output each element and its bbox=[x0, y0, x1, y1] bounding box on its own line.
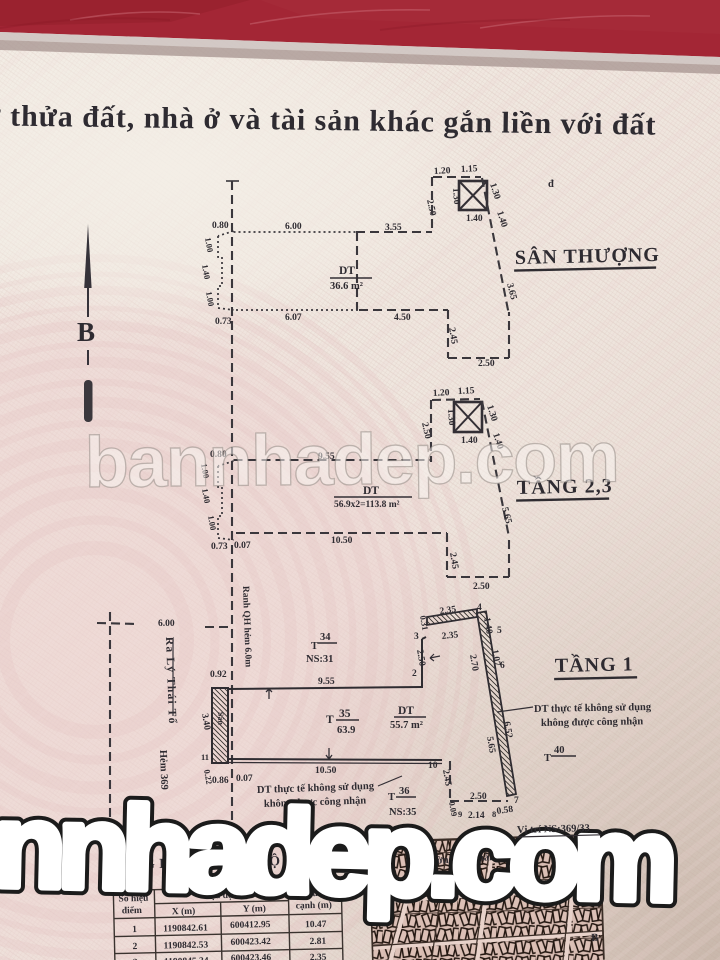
svg-text:2.50: 2.50 bbox=[473, 582, 490, 592]
svg-text:55.7 m²: 55.7 m² bbox=[390, 720, 423, 731]
svg-text:DT thực tế không sử dụng: DT thực tế không sử dụng bbox=[534, 702, 652, 715]
svg-text:63.9: 63.9 bbox=[337, 725, 355, 736]
svg-text:T: T bbox=[311, 641, 318, 652]
svg-text:34: 34 bbox=[320, 632, 331, 643]
svg-text:T: T bbox=[326, 714, 334, 726]
svg-text:NS:31: NS:31 bbox=[306, 654, 333, 665]
svg-text:5: 5 bbox=[497, 626, 502, 636]
svg-text:1.20: 1.20 bbox=[434, 166, 451, 177]
svg-text:1.40: 1.40 bbox=[466, 214, 483, 224]
svg-text:1190845.34: 1190845.34 bbox=[164, 956, 209, 960]
svg-text:0.73: 0.73 bbox=[211, 542, 228, 552]
svg-text:3: 3 bbox=[414, 632, 419, 642]
svg-text:10: 10 bbox=[428, 761, 438, 771]
svg-text:2: 2 bbox=[412, 669, 417, 679]
svg-text:T: T bbox=[544, 753, 551, 764]
svg-text:40: 40 bbox=[554, 745, 565, 756]
svg-text:600423.46: 600423.46 bbox=[231, 953, 272, 960]
svg-text:10.50: 10.50 bbox=[331, 536, 353, 546]
svg-text:2.81: 2.81 bbox=[309, 937, 326, 947]
svg-text:6.00: 6.00 bbox=[158, 619, 175, 629]
svg-text:1190842.53: 1190842.53 bbox=[163, 940, 208, 951]
svg-text:10.47: 10.47 bbox=[305, 920, 327, 930]
svg-text:3.55: 3.55 bbox=[385, 223, 402, 233]
svg-text:9.55: 9.55 bbox=[318, 677, 335, 687]
svg-text:600412.95: 600412.95 bbox=[230, 920, 271, 931]
svg-text:600423.42: 600423.42 bbox=[230, 937, 271, 948]
svg-text:B: B bbox=[77, 317, 95, 347]
svg-text:10.50: 10.50 bbox=[315, 766, 337, 776]
svg-text:1.15: 1.15 bbox=[458, 386, 475, 397]
svg-text:2.35: 2.35 bbox=[310, 953, 327, 960]
svg-text:0.73: 0.73 bbox=[215, 317, 232, 327]
svg-text:4.50: 4.50 bbox=[394, 313, 411, 323]
svg-text:0.80: 0.80 bbox=[212, 221, 229, 231]
svg-text:1190842.61: 1190842.61 bbox=[163, 923, 208, 934]
svg-text:DT: DT bbox=[339, 265, 355, 277]
svg-text:đ: đ bbox=[548, 179, 554, 190]
svg-text:1: 1 bbox=[132, 925, 137, 935]
svg-text:56.9x2=113.8 m²: 56.9x2=113.8 m² bbox=[334, 500, 400, 510]
svg-text:DT: DT bbox=[398, 705, 414, 717]
svg-text:Vị trí NS:369/33: Vị trí NS:369/33 bbox=[517, 823, 590, 836]
svg-text:1.20: 1.20 bbox=[433, 388, 450, 399]
svg-text:35: 35 bbox=[339, 708, 351, 720]
svg-text:SÂN THƯỢNG: SÂN THƯỢNG bbox=[515, 242, 661, 269]
svg-text:nnhadep.com: nnhadep.com bbox=[0, 780, 677, 927]
svg-text:2.35: 2.35 bbox=[441, 630, 459, 642]
svg-text:0.07: 0.07 bbox=[234, 541, 251, 551]
svg-text:6.00: 6.00 bbox=[285, 222, 302, 232]
svg-text:1.30: 1.30 bbox=[450, 188, 461, 206]
svg-text:6: 6 bbox=[500, 661, 505, 671]
svg-text:bannhadep.com: bannhadep.com bbox=[84, 417, 620, 503]
svg-text:2: 2 bbox=[132, 942, 137, 952]
svg-text:B: B bbox=[591, 932, 599, 944]
svg-text:2.50: 2.50 bbox=[478, 359, 495, 369]
svg-text:0.92: 0.92 bbox=[210, 670, 227, 680]
svg-text:6.07: 6.07 bbox=[285, 313, 302, 323]
svg-text:36.6 m²: 36.6 m² bbox=[330, 281, 363, 292]
svg-text:không được công nhận: không được công nhận bbox=[541, 716, 644, 729]
svg-text:Sân: Sân bbox=[216, 712, 225, 726]
svg-text:11: 11 bbox=[201, 752, 209, 762]
svg-text:TẦNG 1: TẦNG 1 bbox=[555, 651, 634, 677]
svg-text:1.15: 1.15 bbox=[461, 164, 478, 175]
svg-text:0.07: 0.07 bbox=[236, 774, 253, 784]
